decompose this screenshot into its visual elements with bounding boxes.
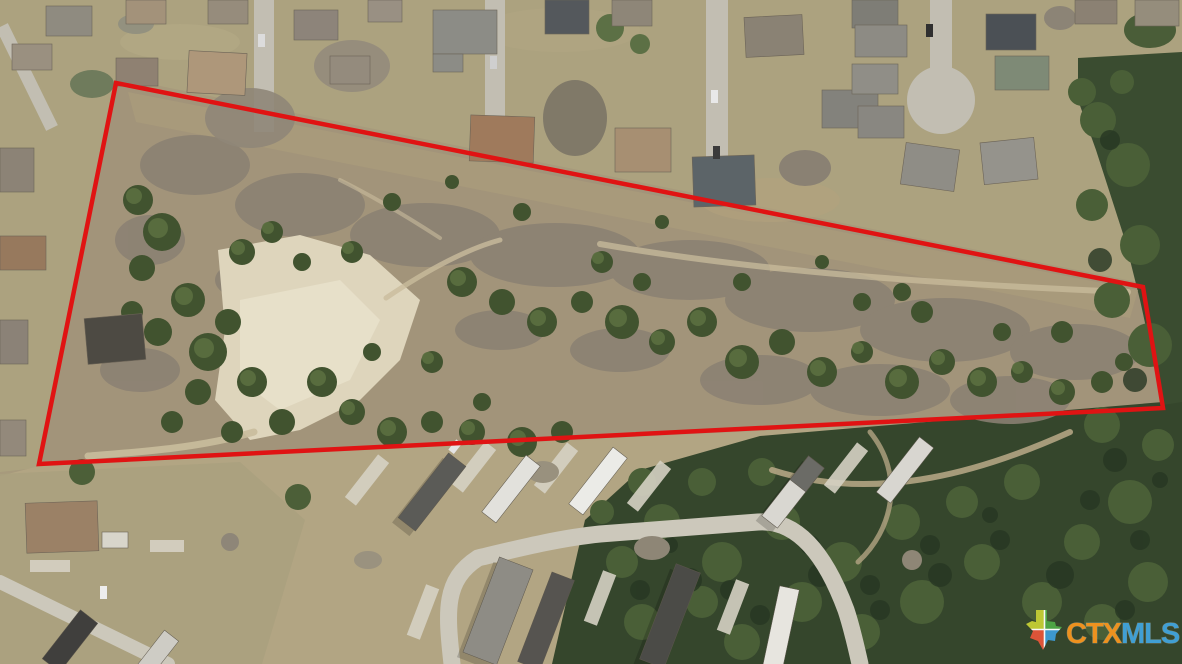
- house: [433, 54, 463, 72]
- house: [187, 51, 247, 96]
- house: [852, 0, 898, 28]
- house: [1075, 0, 1117, 24]
- house: [126, 0, 166, 24]
- house: [995, 56, 1049, 90]
- house: [615, 128, 671, 172]
- house: [0, 148, 34, 192]
- house: [986, 14, 1036, 50]
- house: [25, 501, 99, 553]
- house: [0, 420, 26, 456]
- house: [855, 25, 907, 57]
- house: [612, 0, 652, 26]
- svg-text:CTXMLS: CTXMLS: [1066, 618, 1180, 650]
- cul-de-sac: [907, 66, 975, 134]
- house: [0, 320, 28, 364]
- house: [852, 64, 898, 94]
- house: [294, 10, 338, 40]
- house: [46, 6, 92, 36]
- house: [84, 314, 146, 365]
- house: [0, 236, 46, 270]
- house: [858, 106, 904, 138]
- house: [208, 0, 248, 24]
- house: [102, 532, 128, 548]
- house: [744, 15, 804, 58]
- watermark-text-mls: MLS: [1121, 618, 1180, 650]
- house: [116, 58, 158, 86]
- house: [1135, 0, 1179, 26]
- house: [433, 10, 497, 54]
- house: [330, 56, 370, 84]
- aerial-photo-canvas: CTXMLS: [0, 0, 1182, 664]
- house: [545, 0, 589, 34]
- house: [900, 142, 959, 191]
- aerial-photo: CTXMLS: [0, 0, 1182, 664]
- house: [980, 137, 1038, 184]
- watermark-text-ctx: CTX: [1066, 618, 1123, 650]
- house: [12, 44, 52, 70]
- house: [368, 0, 402, 22]
